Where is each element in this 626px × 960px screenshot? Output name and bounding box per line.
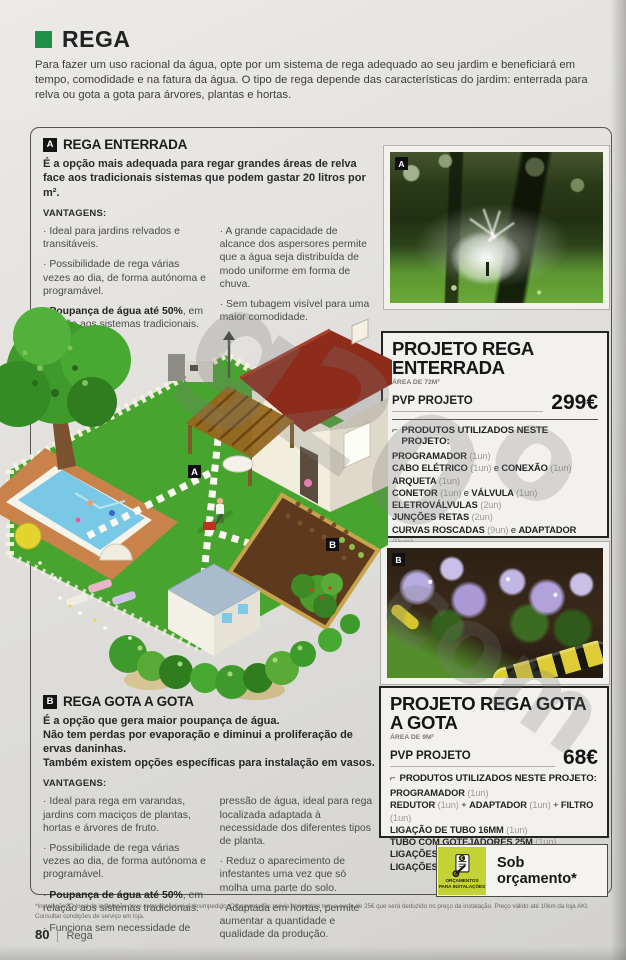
footnote: *Instalação: O local da instalação deve …: [35, 902, 613, 922]
section-a-header: A REGA ENTERRADA: [43, 137, 375, 152]
page-edge-shadow: [610, 0, 626, 960]
photo-marker-b-badge: B: [392, 553, 405, 566]
advantage-item: · Possibilidade de rega várias vezes ao …: [43, 842, 208, 882]
sob-orcamento-label: Sob orçamento*: [487, 855, 607, 887]
project-a-title: PROJETO REGA ENTERRADA: [392, 340, 598, 377]
product-line: CABO ELÉTRICO (1un) e CONEXÃO (1un): [392, 462, 598, 474]
product-line: PROGRAMADOR (1un): [390, 787, 598, 799]
flowers-photo: B: [387, 548, 603, 678]
sob-orcamento-badge: € ORÇAMENTOS PARA INSTALAÇÕES Sob orçame…: [436, 844, 608, 897]
illustration-marker-a: A: [191, 467, 198, 478]
section-b-advantages-label: VANTAGENS:: [43, 778, 375, 789]
product-line: CONETOR (1un) e VÁLVULA (1un): [392, 487, 598, 499]
products-label: PRODUTOS UTILIZADOS NESTE PROJETO:: [400, 773, 597, 784]
panel-divider: [392, 419, 598, 420]
project-a-area: ÁREA DE 72M²: [392, 379, 598, 386]
page-header: REGA: [35, 26, 130, 53]
sprinkler-stem: [486, 262, 489, 276]
pvp-label: PVP PROJETO: [392, 395, 473, 407]
page-section-label: Rega: [57, 930, 92, 942]
sprinkler-photo-frame: A: [384, 146, 609, 309]
product-line: LIGAÇÃO DE TUBO 16MM (1un): [390, 824, 598, 836]
corner-list-icon: ⌐: [392, 425, 398, 447]
section-b-description-line: Também existem opções específicas para i…: [43, 756, 375, 770]
section-b-description-line: Não tem perdas por evaporação e diminui …: [43, 728, 375, 756]
projeto-rega-gota-a-gota-panel: PROJETO REGA GOTA A GOTA ÁREA DE 9M² PVP…: [379, 686, 609, 838]
garden-illustration: A B: [0, 298, 392, 706]
section-b-description-line: É a opção que gera maior poupança de águ…: [43, 714, 375, 728]
product-line: ELETROVÁLVULAS (2un): [392, 499, 598, 511]
sprinkler-photo: A: [390, 152, 603, 303]
photo-marker-a-badge: A: [395, 157, 408, 170]
illustration-marker-b: B: [329, 540, 336, 551]
drip-hose: [490, 638, 603, 678]
advantage-item: · Reduz o aparecimento de infestantes um…: [220, 855, 375, 895]
project-b-area: ÁREA DE 9M²: [390, 734, 598, 741]
section-a-title: REGA ENTERRADA: [63, 137, 187, 152]
brand-green-square-icon: [35, 31, 52, 48]
product-line: ARQUETA (1un): [392, 475, 598, 487]
intro-text: Para fazer um uso racional da água, opte…: [35, 58, 599, 103]
quote-wrench-icon: €: [449, 852, 475, 878]
advantage-item: pressão de água, ideal para rega localiz…: [220, 795, 375, 848]
flowers-photo-frame: B: [381, 542, 609, 684]
project-a-price: 299€: [551, 394, 598, 412]
project-b-price: 68€: [563, 749, 598, 767]
budget-icon-caption: ORÇAMENTOS PARA INSTALAÇÕES: [439, 878, 485, 890]
product-line: REDUTOR (1un) + ADAPTADOR (1un) + FILTRO…: [390, 799, 598, 824]
advantage-item: · Ideal para rega em varandas, jardins c…: [43, 795, 208, 835]
project-b-title: PROJETO REGA GOTA A GOTA: [390, 695, 598, 732]
projeto-rega-enterrada-panel: PROJETO REGA ENTERRADA ÁREA DE 72M² PVP …: [381, 331, 609, 538]
project-b-products-header: ⌐ PRODUTOS UTILIZADOS NESTE PROJETO:: [390, 773, 598, 784]
section-b-advantages: · Ideal para rega em varandas, jardins c…: [43, 795, 375, 948]
pvp-label: PVP PROJETO: [390, 750, 471, 762]
advantages-column-right: pressão de água, ideal para rega localiz…: [220, 795, 375, 948]
catalog-page: REGA Para fazer um uso racional da água,…: [0, 0, 626, 960]
advantage-item: · Ideal para jardins relvados e transitá…: [43, 225, 208, 251]
section-a-description: É a opção mais adequada para regar grand…: [43, 157, 375, 200]
product-line: PROGRAMADOR (1un): [392, 450, 598, 462]
marker-a-badge: A: [43, 138, 57, 152]
project-b-price-row: PVP PROJETO 68€: [390, 746, 598, 767]
advantage-item: · A grande capacidade de alcance dos asp…: [220, 225, 375, 291]
product-line: JUNÇÕES RETAS (2un): [392, 511, 598, 523]
page-number: 80 Rega: [35, 927, 93, 942]
advantages-column-left: · Ideal para rega em varandas, jardins c…: [43, 795, 208, 948]
budget-icon-tile: € ORÇAMENTOS PARA INSTALAÇÕES: [438, 847, 486, 895]
section-a-advantages-label: VANTAGENS:: [43, 208, 375, 219]
products-label: PRODUTOS UTILIZADOS NESTE PROJETO:: [402, 425, 598, 447]
page-title: REGA: [62, 26, 130, 53]
project-a-products-header: ⌐ PRODUTOS UTILIZADOS NESTE PROJETO:: [392, 425, 598, 447]
corner-list-icon: ⌐: [390, 773, 396, 784]
project-a-price-row: PVP PROJETO 299€: [392, 391, 598, 412]
drip-hose-connector: [389, 603, 421, 633]
advantage-item: · Possibilidade de rega várias vezes ao …: [43, 258, 208, 298]
